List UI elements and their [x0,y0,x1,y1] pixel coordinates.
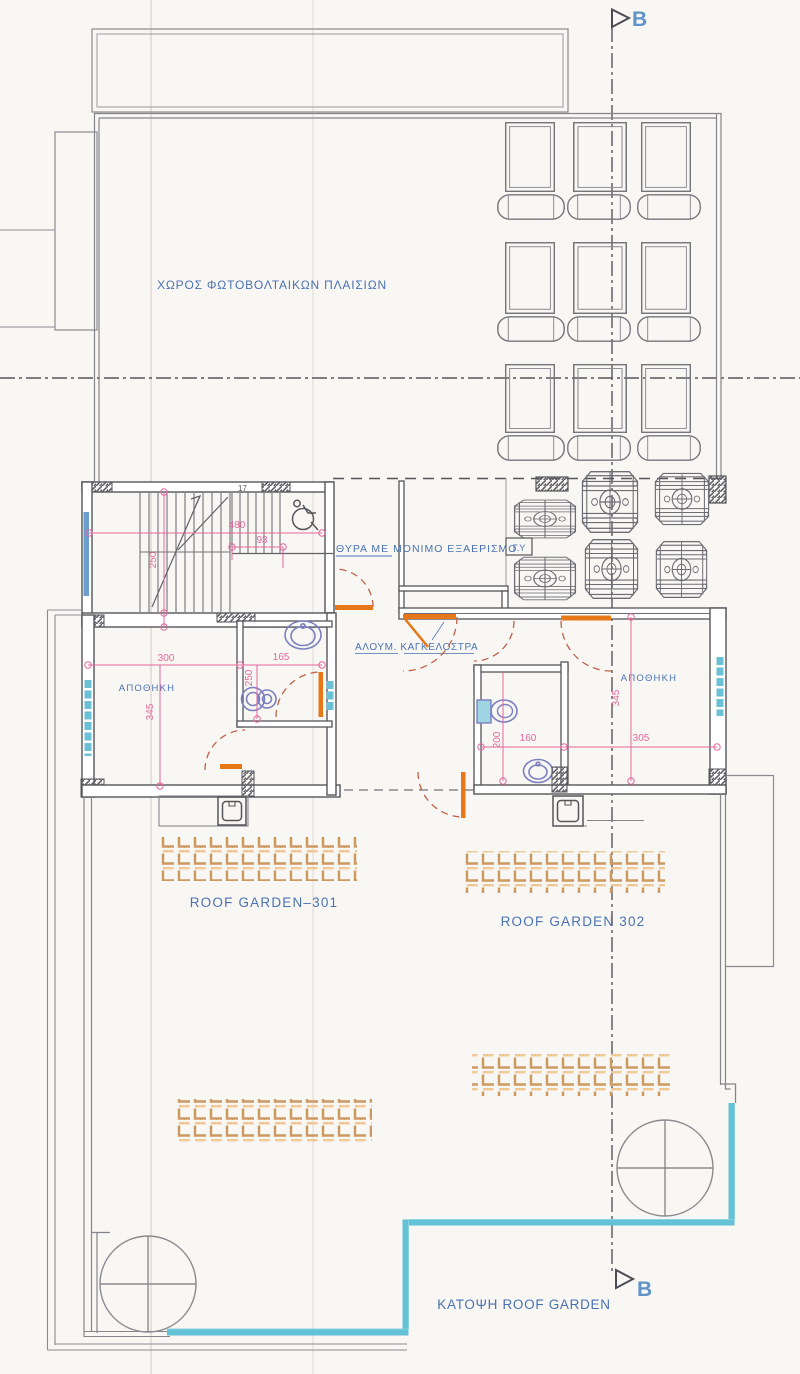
svg-text:ΑΠΟΘΗΚΗ: ΑΠΟΘΗΚΗ [621,673,677,684]
svg-text:480: 480 [229,520,246,531]
svg-text:ROOF GARDEN–301: ROOF GARDEN–301 [190,895,339,910]
svg-text:ΑΠΟΘΗΚΗ: ΑΠΟΘΗΚΗ [119,683,175,694]
svg-text:B: B [632,8,647,31]
svg-text:160: 160 [520,733,537,744]
svg-text:ΑΛΟΥΜ. ΚΑΓΚΕΛΟΣΤΡΑ: ΑΛΟΥΜ. ΚΑΓΚΕΛΟΣΤΡΑ [355,642,478,653]
svg-text:200: 200 [492,731,503,748]
svg-text:Γ.Υ: Γ.Υ [513,543,525,553]
svg-text:345: 345 [611,689,622,706]
svg-text:ΧΩΡΟΣ ΦΩΤΟΒΟΛΤΑΙΚΩΝ ΠΛΑΙΣΙΩΝ: ΧΩΡΟΣ ΦΩΤΟΒΟΛΤΑΙΚΩΝ ΠΛΑΙΣΙΩΝ [157,278,387,292]
svg-text:250: 250 [148,551,159,568]
svg-text:93: 93 [256,535,268,546]
svg-text:305: 305 [633,733,650,744]
svg-text:B: B [637,1278,652,1301]
svg-text:ΚΑΤΟΨΗ ROOF GARDEN: ΚΑΤΟΨΗ ROOF GARDEN [437,1297,610,1312]
svg-text:165: 165 [273,652,290,663]
svg-text:250: 250 [244,669,255,686]
svg-text:ROOF GARDEN 302: ROOF GARDEN 302 [501,914,646,929]
svg-text:300: 300 [158,653,175,664]
svg-text:17: 17 [238,484,247,493]
svg-text:ΘΥΡΑ ΜΕ ΜΟΝΙΜΟ ΕΞΑΕΡΙΣΜΟ: ΘΥΡΑ ΜΕ ΜΟΝΙΜΟ ΕΞΑΕΡΙΣΜΟ [336,543,517,555]
svg-text:345: 345 [145,703,156,720]
